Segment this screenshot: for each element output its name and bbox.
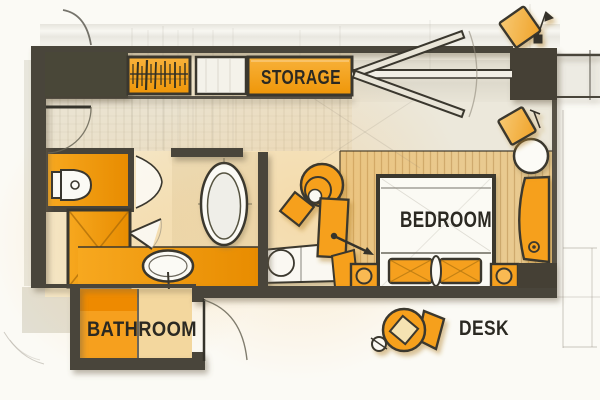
bedroom-label: BEDROOM [400, 207, 492, 232]
nightstand-left [351, 264, 378, 288]
annex-right-wall-top [192, 287, 204, 302]
round-table [514, 139, 548, 173]
cup-icon [371, 337, 387, 351]
wc-room [42, 148, 134, 212]
tub-sill [171, 148, 243, 157]
closet-dark-band [45, 52, 128, 98]
pillow-left [389, 259, 432, 283]
pillow-right [440, 259, 481, 283]
desk-label: DESK [459, 317, 509, 340]
bottom-wall [196, 286, 557, 298]
closet-hanger-unit [128, 57, 190, 94]
annex-bottom-wall [70, 358, 205, 370]
rolled-towel [431, 256, 441, 286]
floor-plan-canvas: STORAGE [0, 0, 600, 400]
bathroom-right-wall [258, 152, 268, 287]
annex-left-wall [70, 287, 80, 370]
annex-right-wall-bottom [192, 352, 204, 370]
shelf-unit [196, 57, 246, 94]
top-wall [45, 46, 513, 53]
counter-bottom-line [45, 284, 196, 288]
entry-column-block [510, 48, 557, 100]
bathroom-label: BATHROOM [87, 318, 197, 341]
floor-plan-page: STORAGE [0, 0, 600, 400]
left-wall [31, 46, 46, 288]
wardrobe-cabinet [519, 177, 549, 262]
right-wall [552, 100, 557, 290]
nightstand-right [491, 264, 518, 288]
toilet-icon [52, 170, 91, 200]
storage-label: STORAGE [261, 67, 341, 89]
bedroom-corner-block [518, 263, 557, 288]
storage-box: STORAGE [248, 57, 352, 95]
